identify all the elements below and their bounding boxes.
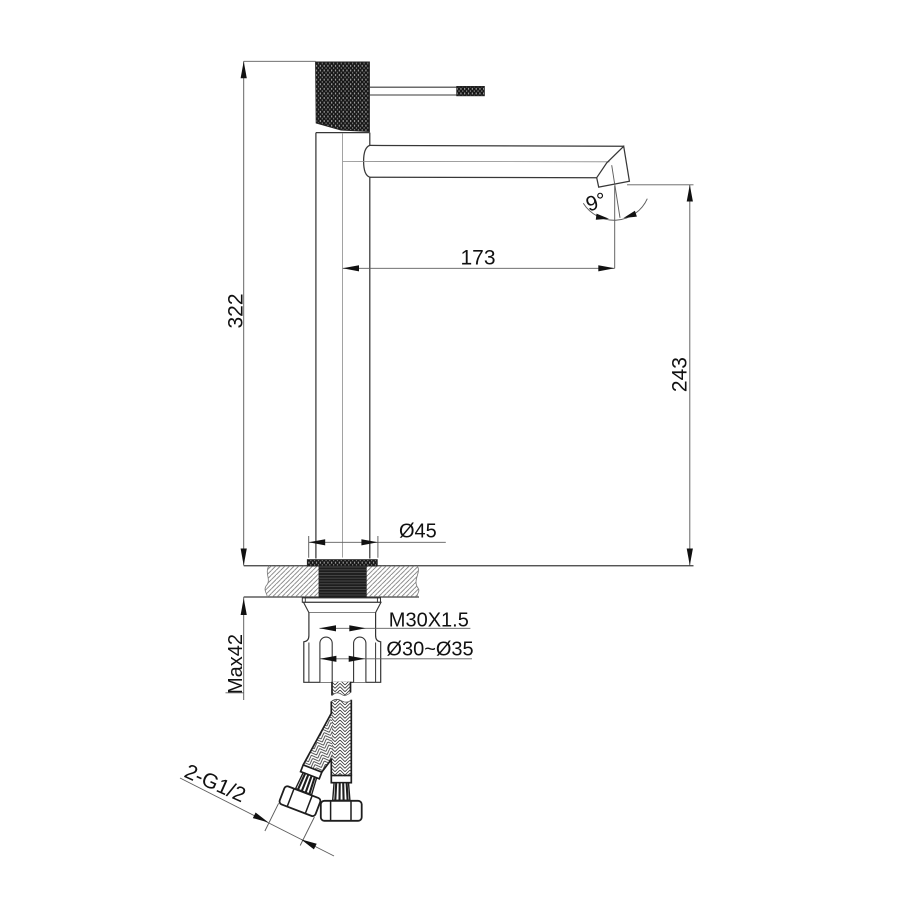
- svg-text:Max42: Max42: [225, 634, 247, 694]
- svg-text:2-G1/2: 2-G1/2: [181, 760, 249, 807]
- svg-text:9°: 9°: [583, 188, 609, 216]
- svg-text:173: 173: [460, 247, 495, 270]
- svg-text:Ø45: Ø45: [399, 521, 437, 543]
- svg-text:M30X1.5: M30X1.5: [389, 609, 469, 631]
- svg-text:Ø30~Ø35: Ø30~Ø35: [386, 639, 473, 661]
- svg-text:243: 243: [669, 357, 692, 392]
- svg-text:322: 322: [224, 293, 247, 328]
